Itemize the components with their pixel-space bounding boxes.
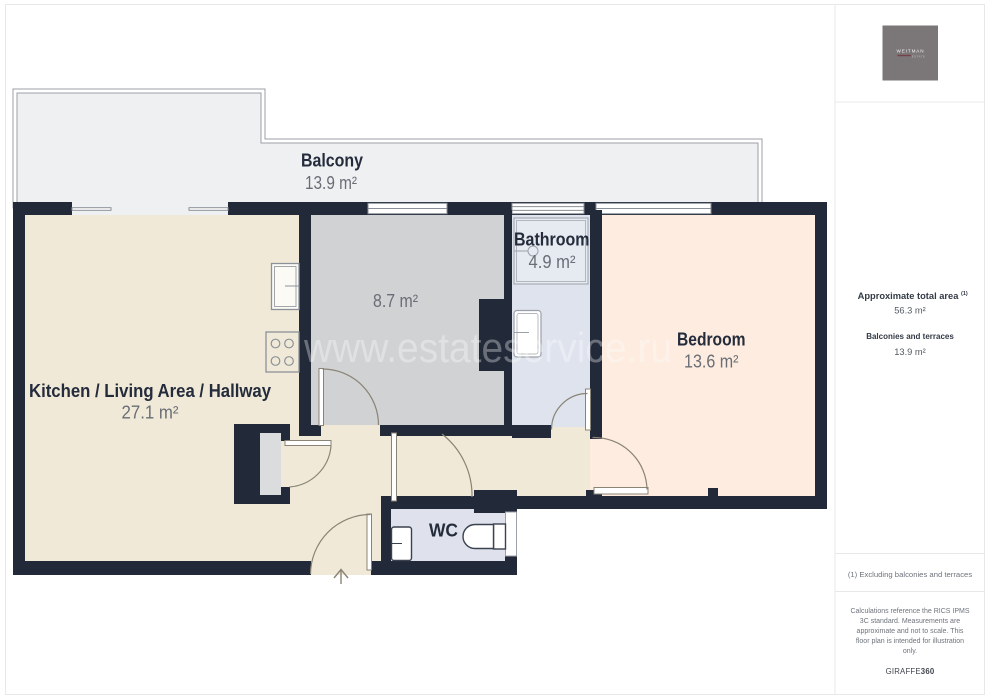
svg-text:only.: only.: [903, 648, 917, 655]
svg-text:13.6 m²: 13.6 m²: [684, 352, 739, 372]
svg-text:Balconies and terraces: Balconies and terraces: [866, 332, 954, 341]
svg-text:www.estateservice.ru: www.estateservice.ru: [303, 324, 672, 371]
svg-text:Kitchen / Living Area / Hallwa: Kitchen / Living Area / Hallway: [29, 381, 271, 401]
svg-text:3C standard. Measurements are: 3C standard. Measurements are: [860, 618, 960, 625]
svg-text:(1) Excluding balconies and te: (1) Excluding balconies and terraces: [848, 570, 973, 579]
svg-text:Bathroom: Bathroom: [514, 230, 590, 250]
svg-text:56.3 m²: 56.3 m²: [894, 306, 926, 316]
svg-text:(1): (1): [961, 291, 968, 297]
svg-text:WC: WC: [429, 521, 458, 541]
svg-text:Balcony: Balcony: [301, 151, 363, 171]
svg-text:4.9 m²: 4.9 m²: [529, 252, 576, 272]
svg-text:8.7 m²: 8.7 m²: [373, 291, 418, 311]
svg-text:ESTATE: ESTATE: [912, 55, 926, 59]
svg-text:Approximate total area: Approximate total area: [858, 291, 960, 301]
svg-text:Bedroom: Bedroom: [677, 330, 746, 350]
svg-text:WEITMAN: WEITMAN: [897, 49, 925, 54]
svg-text:13.9 m²: 13.9 m²: [894, 347, 926, 357]
svg-text:floor plan is intended for ill: floor plan is intended for illustration: [856, 638, 964, 645]
svg-text:GIRAFFE360: GIRAFFE360: [886, 667, 935, 676]
svg-text:approximate and not to scale.: approximate and not to scale. This: [857, 628, 964, 635]
svg-text:27.1 m²: 27.1 m²: [122, 403, 179, 423]
svg-text:Calculations reference the RIC: Calculations reference the RICS IPMS: [850, 608, 969, 615]
svg-text:13.9 m²: 13.9 m²: [305, 173, 357, 193]
